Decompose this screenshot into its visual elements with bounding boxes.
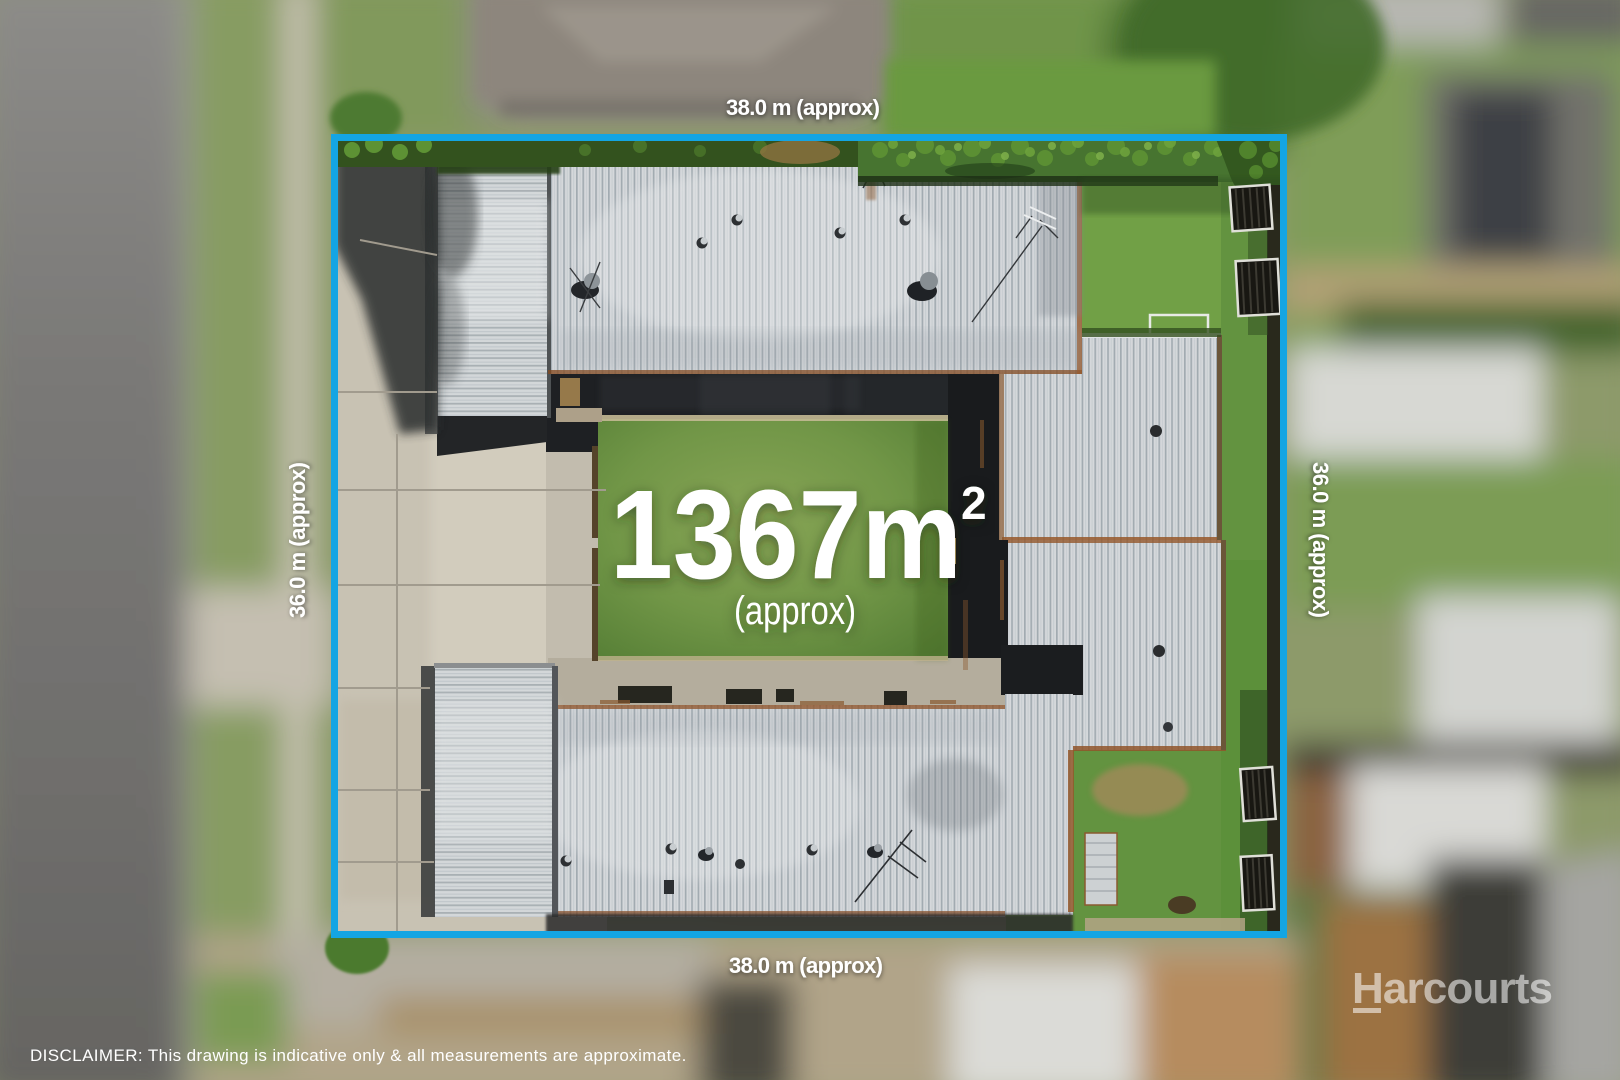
svg-text:36.0 m (approx): 36.0 m (approx) (285, 462, 310, 618)
svg-text:1367m: 1367m (610, 464, 962, 605)
svg-text:38.0 m (approx): 38.0 m (approx) (729, 953, 883, 978)
svg-text:Harcourts: Harcourts (1352, 964, 1553, 1013)
svg-text:2: 2 (961, 477, 987, 529)
svg-text:DISCLAIMER: This drawing is in: DISCLAIMER: This drawing is indicative o… (30, 1046, 687, 1065)
svg-text:(approx): (approx) (734, 589, 856, 633)
svg-text:36.0 m (approx): 36.0 m (approx) (1308, 462, 1333, 618)
svg-text:38.0 m (approx): 38.0 m (approx) (726, 95, 880, 120)
